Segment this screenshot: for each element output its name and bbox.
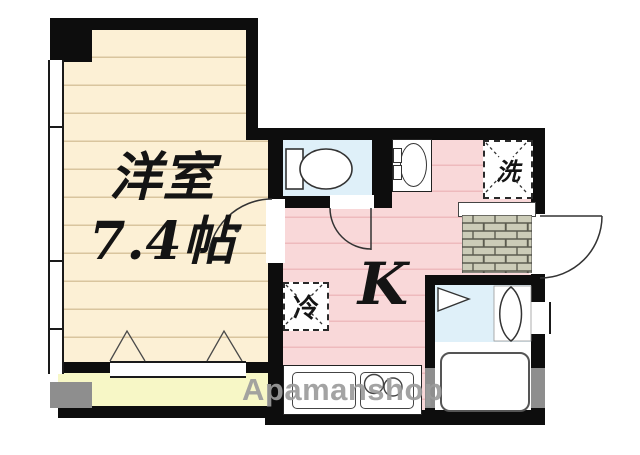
refrigerator-corner-dashes xyxy=(286,285,322,324)
floor-plan: 冷 洗 xyxy=(0,0,640,455)
toilet-fixture-icon xyxy=(286,149,352,189)
kitchen-label: K xyxy=(348,254,418,314)
toilet-door-swing-icon xyxy=(330,208,371,250)
entry-door-swing-icon xyxy=(540,216,602,278)
washer-corner-dashes xyxy=(486,143,526,192)
bath-folding-door-icon xyxy=(438,288,469,311)
western-room-label: 洋室 7.4帖 xyxy=(60,146,265,274)
watermark: Apamanshop xyxy=(242,372,522,408)
western-room-size: 7.4帖 xyxy=(60,210,265,274)
balcony-window-triangles-icon xyxy=(110,331,242,361)
bath-curved-door-icon xyxy=(494,286,531,341)
western-room-name: 洋室 xyxy=(60,146,265,210)
